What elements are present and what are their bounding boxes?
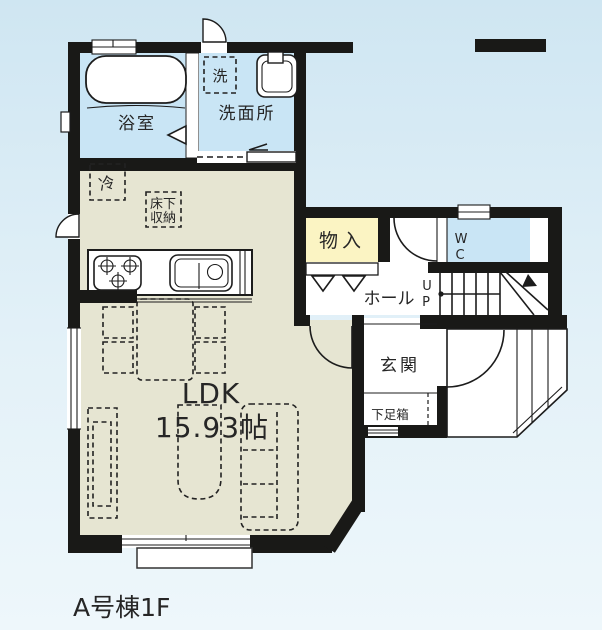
wall-block-top	[294, 207, 562, 218]
wall-frontdoor-post	[437, 386, 447, 427]
wall-entrance-left	[352, 315, 364, 437]
bathroom-window	[92, 40, 136, 54]
wall-bottom-right	[250, 535, 332, 553]
label-washroom: 洗面所	[219, 104, 276, 124]
bath-washroom-divider	[186, 53, 199, 158]
wall-bottom-left	[68, 535, 122, 553]
label-wc-1: W	[455, 232, 468, 247]
wall-ldk-right	[352, 437, 365, 512]
wall-entrance-bottom	[352, 425, 447, 438]
wc-door-strip	[437, 218, 447, 262]
closet-bifold-track	[306, 263, 378, 275]
label-washer: 洗	[212, 67, 227, 85]
label-shoebox: 下足箱	[371, 407, 409, 422]
wc-window	[458, 205, 490, 219]
washroom-sink	[257, 52, 297, 97]
wall-wc-bottom	[428, 262, 562, 273]
bathtub	[86, 56, 186, 103]
label-closet: 物入	[319, 230, 365, 252]
label-up-1: U	[422, 279, 432, 294]
label-hall: ホール	[364, 289, 415, 309]
left-window	[67, 328, 81, 429]
label-up-2: P	[422, 295, 430, 310]
label-underfloor-2: 収納	[150, 211, 176, 226]
label-ldk: LDK	[182, 377, 241, 410]
wall-stairs-bottom	[420, 315, 567, 329]
front-door-opening	[437, 329, 447, 386]
back-door-opening	[201, 42, 227, 53]
wall-hall-bottom	[294, 315, 310, 326]
wall-closet-right	[378, 218, 390, 262]
label-wc-2: C	[455, 248, 464, 263]
entrance-step-marks	[368, 427, 398, 436]
counter-wall-stub	[68, 290, 137, 303]
label-entrance: 玄関	[380, 356, 420, 376]
terrace	[137, 548, 252, 568]
bath-small-window	[61, 112, 70, 132]
label-underfloor-1: 床下	[150, 197, 176, 212]
plan-title: A号棟1F	[73, 593, 170, 622]
label-ldk-area: 15.93帖	[155, 411, 269, 444]
wall-right	[548, 207, 562, 330]
ldk-south-window	[122, 535, 250, 548]
wc-side-strip	[530, 218, 548, 262]
wall-neighbor	[475, 39, 546, 52]
floor-plan: 浴室 洗 洗面所 冷 床下 収納 物入 W C ホール U P 玄関 下足箱 L…	[0, 0, 602, 630]
label-bathroom: 浴室	[118, 114, 156, 134]
room-vestibule	[390, 218, 437, 262]
